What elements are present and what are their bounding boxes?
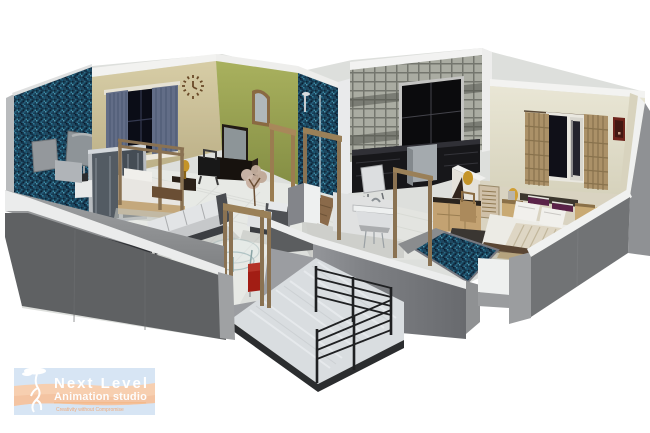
- svg-text:Next Level: Next Level: [54, 375, 149, 392]
- svg-text:Creativity without Compromise: Creativity without Compromise: [56, 407, 124, 413]
- svg-text:Animation studio: Animation studio: [54, 391, 147, 403]
